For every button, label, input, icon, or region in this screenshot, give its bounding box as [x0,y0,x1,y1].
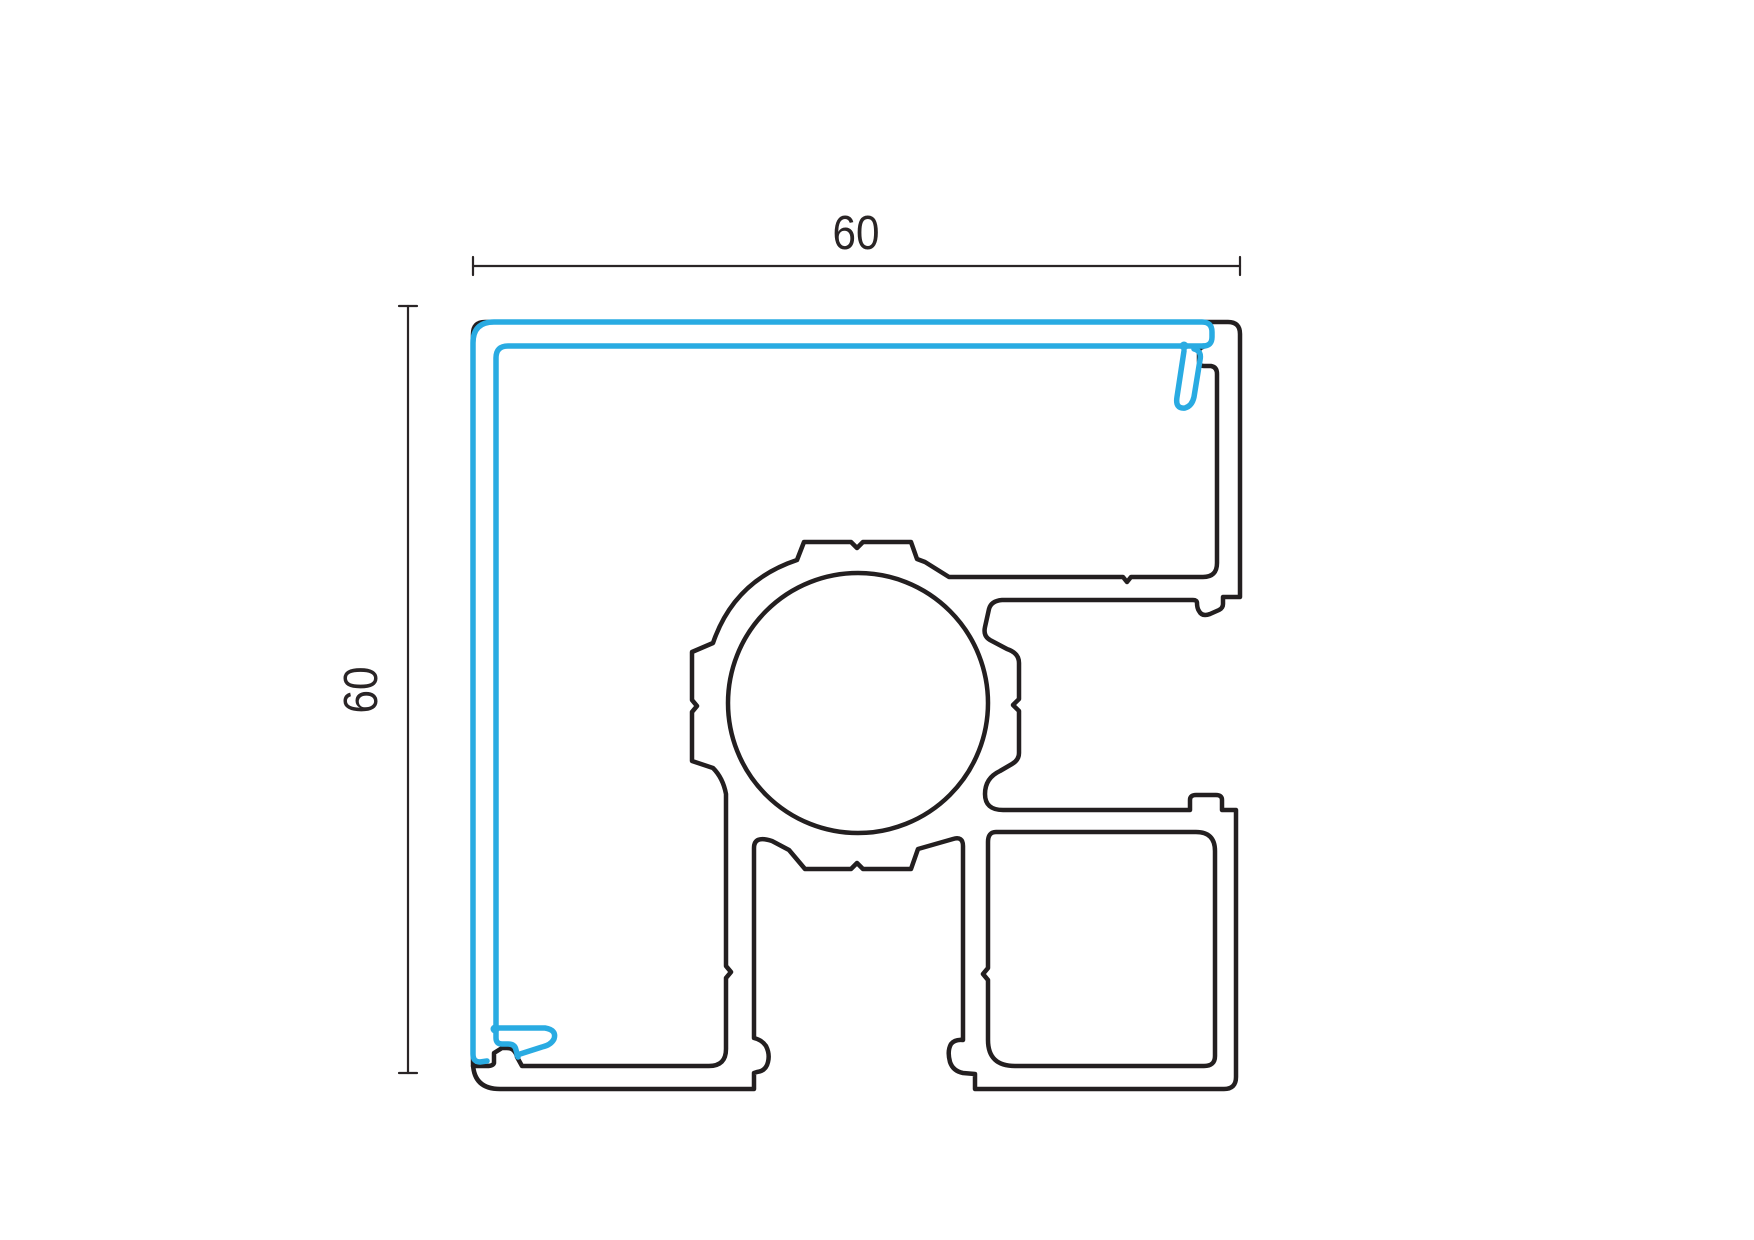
profile-main-chamber-contour [473,347,1217,1066]
profile-drawing-sheet: 60 60 [0,0,1754,1240]
profile-square-chamber-contour [983,832,1215,1066]
gasket-group [473,322,1212,1062]
profile-screw-boss-circle [728,573,988,833]
dimension-label-top: 60 [812,210,900,258]
gasket-inner-line [496,346,1204,1057]
gasket-outer-line [473,322,1212,1062]
gasket-anchor-dot-bottom-left [491,1025,500,1034]
gasket-anchor-dot-top-right [1180,342,1189,351]
profile-outer-contour [473,322,1240,1089]
dimension-label-left: 60 [338,646,386,734]
dimension-group [399,257,1240,1073]
profile-cross-section-drawing [0,0,1754,1240]
profile-outline-group [473,322,1240,1089]
